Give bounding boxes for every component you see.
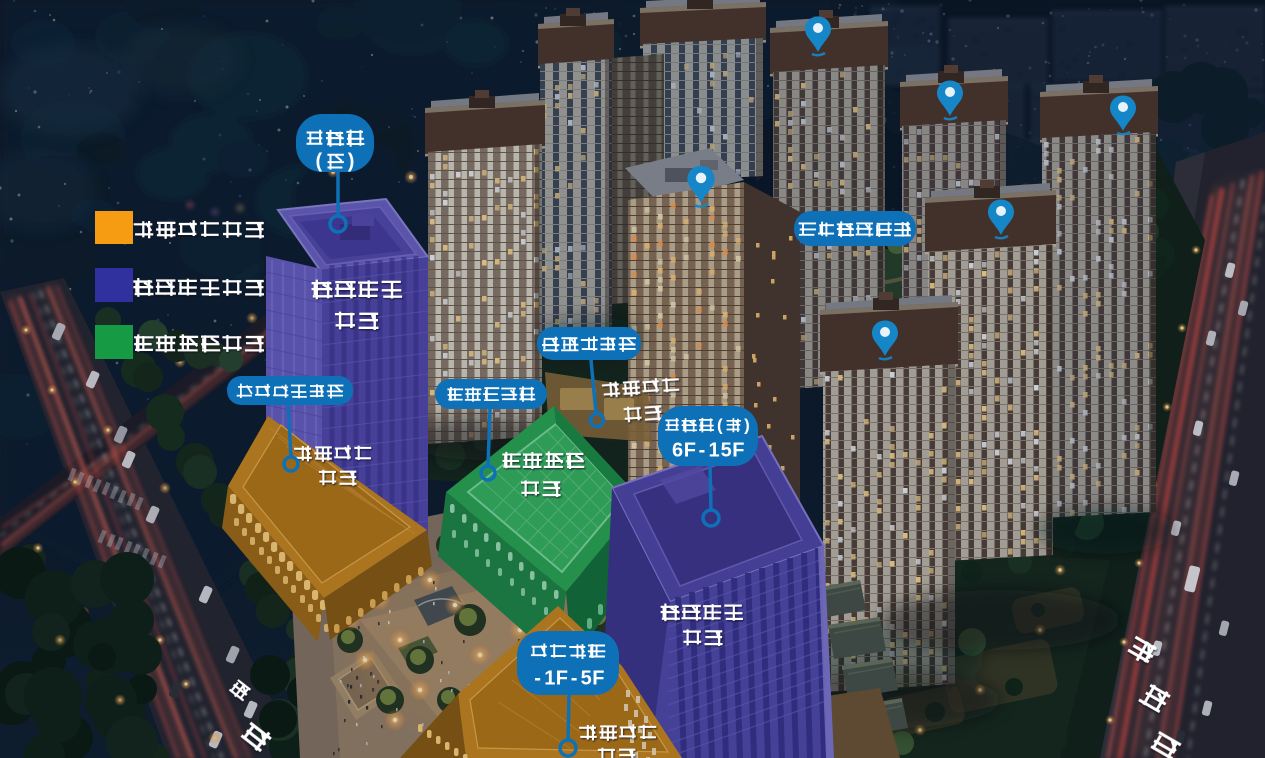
svg-text:): ) [348,151,355,173]
svg-text:-: - [699,440,706,462]
svg-text:F: F [732,440,744,462]
svg-text:-: - [534,668,541,690]
svg-text:F: F [592,668,604,690]
svg-text:1: 1 [544,668,555,690]
svg-text:F: F [684,440,696,462]
svg-text:(: ( [717,415,723,434]
svg-text:5: 5 [721,440,732,462]
svg-text:): ) [744,415,750,434]
svg-text:5: 5 [581,668,592,690]
svg-text:6: 6 [672,440,683,462]
svg-text:1: 1 [709,440,720,462]
svg-text:F: F [556,668,568,690]
svg-text:(: ( [315,151,322,173]
svg-text:-: - [571,668,578,690]
